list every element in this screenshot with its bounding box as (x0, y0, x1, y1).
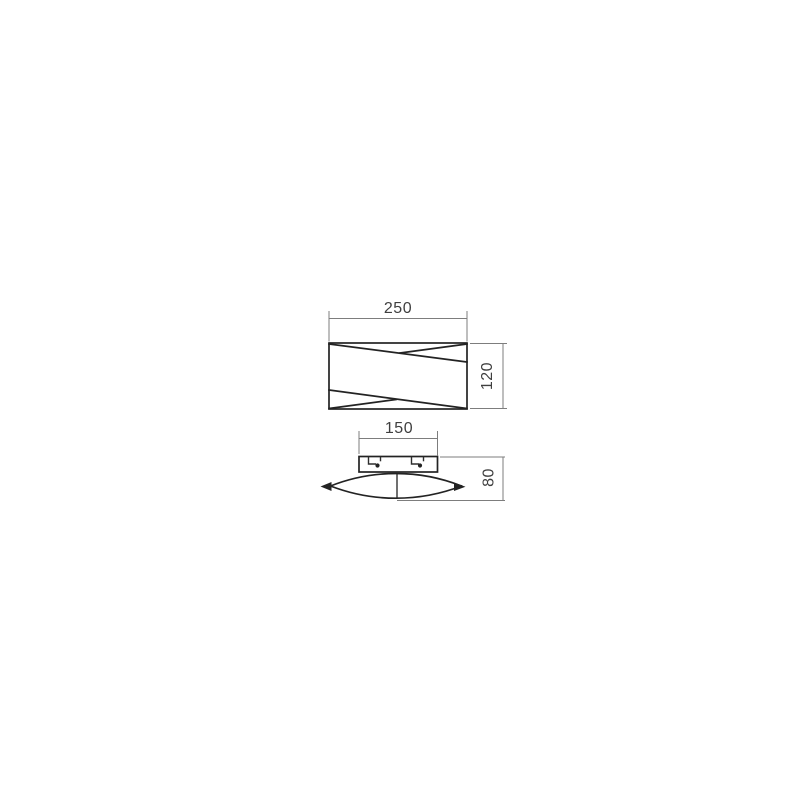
top-view-dimension-labels: 150 80 (385, 420, 498, 487)
dimension-drawing-page: 250 120 (0, 0, 800, 800)
keyhole-hook-right (412, 457, 419, 464)
top-view: 150 80 (321, 420, 506, 501)
dim-height-label: 120 (479, 362, 496, 390)
front-view-object-lines (329, 343, 467, 409)
diffuser-top-arc (331, 474, 462, 486)
keyhole-dot-right (418, 463, 422, 467)
front-twist-upper-fold (400, 344, 467, 353)
dim-depth-label: 80 (481, 468, 498, 487)
keyhole-hook-left (369, 457, 376, 464)
dim-width-label: 250 (384, 300, 412, 317)
front-twist-lower-fold (329, 400, 396, 409)
front-view-dimension-labels: 250 120 (384, 300, 496, 390)
top-view-object-lines (331, 457, 462, 499)
lamp-dimension-drawing: 250 120 (0, 0, 800, 800)
front-view: 250 120 (329, 300, 507, 409)
top-view-dimension-lines (359, 431, 505, 501)
diffuser-left-tip (321, 482, 332, 491)
keyhole-dot-left (375, 463, 379, 467)
diffuser-bottom-arc (331, 486, 462, 498)
keyhole-hangers (369, 457, 424, 464)
diffuser-right-tip (454, 483, 466, 492)
top-view-filled-details (321, 463, 466, 491)
dim-plate-label: 150 (385, 420, 413, 437)
